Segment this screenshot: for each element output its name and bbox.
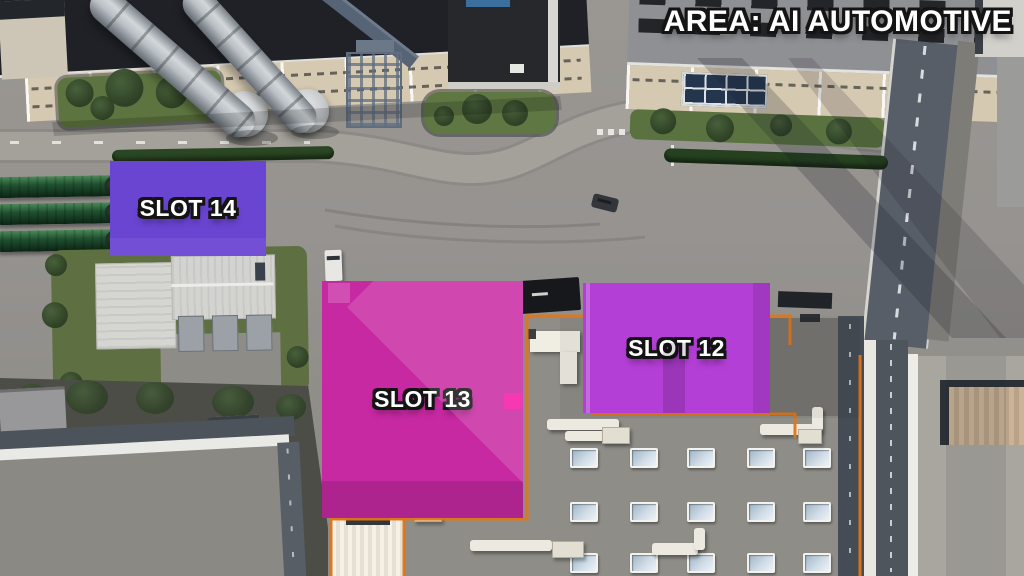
factory-roof-shaded [770, 318, 838, 416]
roof-pipe [470, 540, 552, 551]
corner-building [0, 0, 68, 80]
area-title: AREA: AI AUTOMOTIVE [664, 5, 1012, 39]
grass-island [424, 92, 556, 134]
hvac-unit [552, 541, 584, 558]
crane-tower [346, 52, 402, 128]
slot-13-pink-unit [504, 393, 522, 409]
slot-13-overlay[interactable]: SLOT 13 [322, 281, 523, 518]
curb-white [864, 340, 876, 576]
skylight [747, 448, 775, 468]
slot-12-dark-column [663, 343, 685, 413]
roof-pipe [694, 528, 705, 550]
office-window [255, 263, 265, 281]
parked-van [324, 250, 342, 282]
roof-pipe [652, 543, 698, 555]
roof-pipe [812, 407, 823, 431]
slot-14-label: SLOT 14 [140, 195, 237, 222]
slot-13-light-block [328, 283, 350, 303]
warehouse-trim-right [548, 0, 558, 88]
slot-12-dark-edge [753, 283, 770, 413]
skylight [570, 502, 598, 522]
rooftop-unit-blue [466, 0, 510, 7]
east-service-road [876, 340, 908, 576]
sw-roof [0, 445, 294, 576]
rooftop-hatch-dark [527, 329, 536, 339]
skylight [687, 553, 715, 573]
warehouse-trim-bottom [448, 82, 560, 90]
tree [66, 380, 108, 414]
factory-white-roof-section [332, 520, 404, 576]
tree [212, 386, 254, 418]
crane-platform [356, 40, 394, 52]
office-building [95, 254, 277, 347]
skylight [630, 448, 658, 468]
slot-12-light-streak [586, 283, 590, 413]
rooftop-vent-dark [800, 314, 820, 322]
skylight [687, 448, 715, 468]
trailer [519, 277, 581, 314]
office-lot [51, 246, 310, 396]
hvac-unit [602, 427, 630, 444]
hvac-unit [798, 429, 822, 444]
skylight [570, 448, 598, 468]
game-viewport: SLOT 14 SLOT 13 SLOT 12 AREA: AI AUTOMOT… [0, 0, 1024, 576]
garage-door [178, 316, 205, 352]
skylight [803, 448, 831, 468]
curb-white [908, 354, 918, 576]
tank-cylinder [0, 175, 118, 198]
factory-wall-east [838, 316, 864, 576]
slot-14-sheen [110, 238, 266, 256]
rooftop-vent-dark [778, 291, 833, 309]
slot-13-dark-band [322, 481, 523, 518]
tank-cylinder [0, 202, 118, 225]
loading-dock-awning [940, 380, 1024, 445]
solar-panel-array [681, 72, 768, 109]
skylight [747, 502, 775, 522]
skylight [803, 553, 831, 573]
parked-car [591, 193, 620, 213]
skylight [803, 502, 831, 522]
rooftop-hatch [510, 64, 524, 73]
skylight [687, 502, 715, 522]
slot-14-overlay[interactable]: SLOT 14 [110, 161, 266, 256]
white-wall-structure [560, 352, 577, 384]
skylight [630, 502, 658, 522]
corner-building-roof [0, 0, 65, 20]
southwest-building [0, 411, 316, 576]
skylight [630, 553, 658, 573]
garage-door [246, 314, 273, 350]
garage-door [212, 315, 239, 351]
white-wall-structure [530, 331, 580, 352]
slot-12-overlay[interactable]: SLOT 12 [583, 283, 770, 413]
office-roof-left [95, 262, 176, 349]
far-right-wall [997, 57, 1024, 207]
tree [136, 382, 174, 414]
warehouse-roof-dark [448, 0, 560, 90]
skylight [747, 553, 775, 573]
